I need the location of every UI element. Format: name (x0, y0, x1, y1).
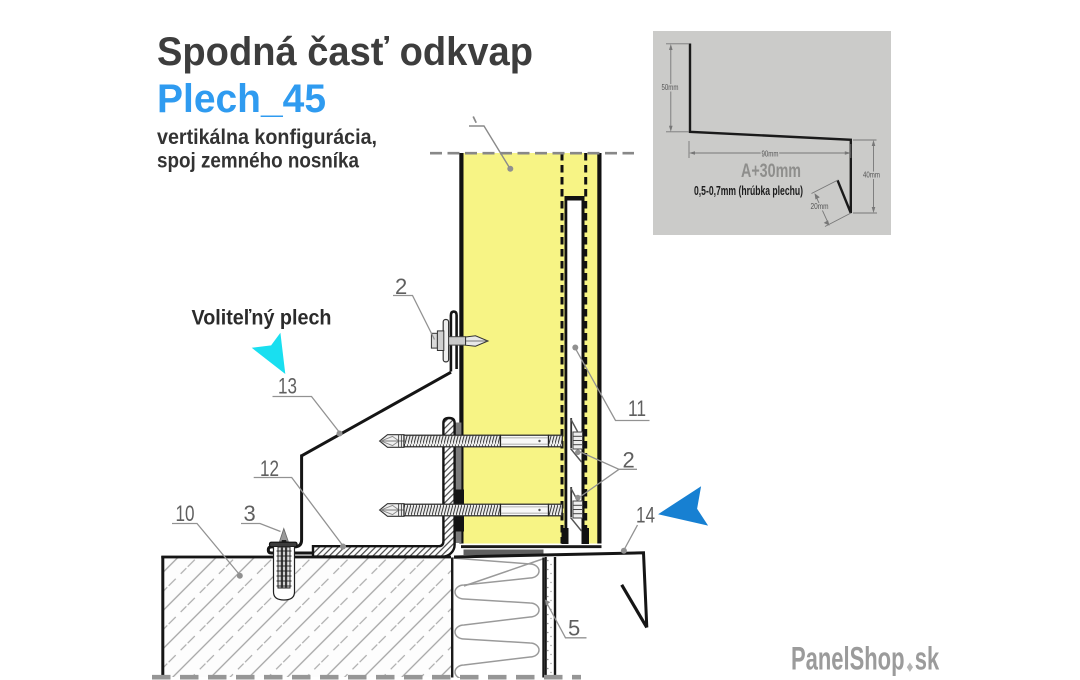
svg-text:Voliteľný plech: Voliteľný plech (192, 307, 332, 330)
svg-text:Plech_45: Plech_45 (157, 77, 326, 121)
svg-text:40mm: 40mm (863, 171, 880, 180)
svg-text:A+30mm: A+30mm (741, 161, 801, 182)
svg-text:PanelShop: PanelShop (791, 641, 905, 677)
svg-text:90mm: 90mm (762, 150, 779, 159)
svg-text:13: 13 (278, 374, 297, 399)
svg-text:5: 5 (568, 616, 580, 641)
svg-text:20mm: 20mm (811, 202, 829, 211)
svg-text:Spodná časť odkvap: Spodná časť odkvap (157, 30, 533, 74)
svg-text:sk: sk (915, 641, 940, 677)
svg-text:14: 14 (636, 503, 655, 528)
svg-text:11: 11 (628, 396, 646, 421)
svg-text:vertikálna konfigurácia,: vertikálna konfigurácia, (157, 126, 377, 149)
svg-text:10: 10 (176, 501, 195, 526)
svg-text:0,5-0,7mm (hrúbka plechu): 0,5-0,7mm (hrúbka plechu) (694, 183, 803, 198)
svg-text:3: 3 (244, 501, 256, 526)
svg-text:spoj zemného nosníka: spoj zemného nosníka (157, 150, 359, 173)
svg-text:50mm: 50mm (662, 83, 679, 92)
